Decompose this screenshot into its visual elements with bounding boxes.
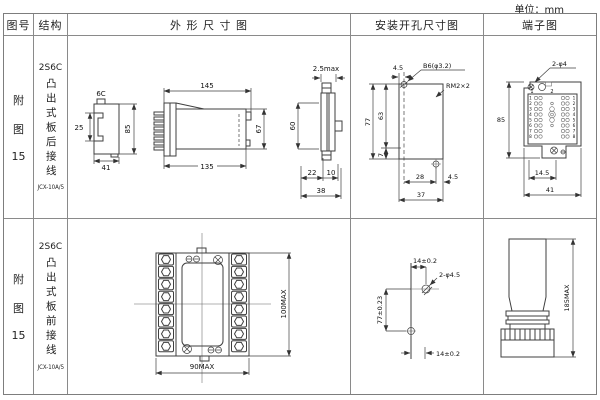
outline-cell-row1: 6C 25 85 41 xyxy=(68,36,351,219)
row-number: 5 xyxy=(529,118,532,123)
hole-spec-label: 2-φ4 xyxy=(552,60,567,68)
dim-label-38: 38 xyxy=(317,187,326,195)
dim-label-2-5max: 2.5max xyxy=(313,65,339,73)
relay-side-view xyxy=(154,103,251,156)
structure-cell-row2: 2S6C 凸出式板前接线 JCX-10A/5 xyxy=(34,219,68,394)
row-number: 6 xyxy=(573,123,576,128)
row-number: 7 xyxy=(573,129,576,134)
dim-label-14-bottom: 14±0.2 xyxy=(436,350,460,358)
dim-label-185max: 185MAX xyxy=(563,284,571,311)
figure-cell-row2: 附 图 15 xyxy=(4,219,34,394)
terminal-row-numbers-left: 1 2 3 4 5 6 7 8 xyxy=(529,96,532,140)
terminal-col2-label: 2 xyxy=(550,89,553,95)
dim-label-90max: 90MAX xyxy=(190,363,215,371)
row-number: 8 xyxy=(529,134,532,139)
structure-cell-row1: 2S6C 凸出式板后接线 JCX-10A/5 xyxy=(34,36,68,219)
socket-base xyxy=(501,329,554,357)
row-number: 2 xyxy=(529,101,532,106)
row-number: 4 xyxy=(529,112,532,117)
row-number: 5 xyxy=(573,118,576,123)
dim-label-145: 145 xyxy=(200,82,213,90)
dim-label-4-5-right: 4.5 xyxy=(448,173,458,181)
dim-label-100max: 100MAX xyxy=(280,289,288,318)
mount-type-text: 凸出式板后接线 xyxy=(45,78,56,180)
mounting-cell-row2: 14±0.2 2-φ4.5 77±0.23 14±0.2 xyxy=(351,219,484,394)
panel-edge-view xyxy=(321,83,342,160)
row-number: 2 xyxy=(573,101,576,106)
datasheet-page: 单位：mm 图号 结构 外 形 尺 寸 图 安装开孔尺寸图 端子图 附 图 15… xyxy=(0,0,600,400)
dim-label-135: 135 xyxy=(200,163,213,171)
mounting-drawing-front-wiring: 14±0.2 2-φ4.5 77±0.23 14±0.2 xyxy=(351,219,484,394)
header-mounting: 安装开孔尺寸图 xyxy=(351,14,484,36)
socket-terminal-screws-left xyxy=(159,254,174,352)
terminal-cell-row1: 1 2 1 2 3 xyxy=(484,36,596,219)
header-outline: 外 形 尺 寸 图 xyxy=(68,14,351,36)
row-number: 6 xyxy=(529,123,532,128)
type-code: JCX-10A/5 xyxy=(37,184,64,191)
thread-spec-label: RM2×2 xyxy=(446,82,470,90)
dim-label-4-5-top: 4.5 xyxy=(393,64,403,72)
dim-label-14-top: 14±0.2 xyxy=(413,257,437,265)
hole-spec-label: B6(φ3.2) xyxy=(423,62,451,70)
figure-cell-row1: 附 图 15 xyxy=(4,36,34,219)
dim-label-77: 77±0.23 xyxy=(376,296,384,324)
dim-label-85: 85 xyxy=(124,125,132,134)
figure-char: 图 xyxy=(13,300,24,316)
mounting-cell-row1: 4.5 B6(φ3.2) RM2×2 77 63 7 28 4.5 xyxy=(351,36,484,219)
dim-label-85: 85 xyxy=(497,116,505,124)
socket-mounting-screws xyxy=(183,256,223,354)
hole-spec-label: 2-φ4.5 xyxy=(439,271,460,279)
row-number: 1 xyxy=(529,96,532,101)
header-figure: 图号 xyxy=(4,14,34,36)
dim-label-63: 63 xyxy=(377,112,385,120)
relay-model: 2S6C xyxy=(39,242,62,252)
mounting-drawing-rear-wiring: 4.5 B6(φ3.2) RM2×2 77 63 7 28 4.5 xyxy=(351,36,484,219)
terminal-drawing: 1 2 1 2 3 xyxy=(484,36,596,219)
outline-drawing-front-wiring: 90MAX 100MAX xyxy=(68,219,351,394)
figure-number: 15 xyxy=(12,329,26,342)
dim-label-22: 22 xyxy=(308,169,317,177)
relay-model: 2S6C xyxy=(39,63,62,73)
figure-number: 15 xyxy=(12,150,26,163)
dim-label-25: 25 xyxy=(75,124,84,132)
relay-body xyxy=(506,239,549,329)
row-number: 3 xyxy=(529,107,532,112)
terminal-col1-label: 1 xyxy=(530,89,533,95)
socket-terminal-screws-right xyxy=(232,254,247,352)
dim-label-67: 67 xyxy=(255,125,263,134)
plate-screws xyxy=(528,82,566,154)
terminal-row-numbers-right: 1 2 3 4 5 6 7 8 xyxy=(573,96,576,140)
row-number: 7 xyxy=(529,129,532,134)
dim-label-60: 60 xyxy=(289,122,297,131)
dim-label-37: 37 xyxy=(417,191,425,199)
dim-label-10: 10 xyxy=(327,169,336,177)
terminal-cell-row2: 185MAX xyxy=(484,219,596,394)
mount-type-text: 凸出式板前接线 xyxy=(45,257,56,359)
type-code: JCX-10A/5 xyxy=(37,364,64,371)
dim-label-41: 41 xyxy=(546,186,554,194)
dim-label-28: 28 xyxy=(416,173,424,181)
dim-label-14-5: 14.5 xyxy=(535,169,549,177)
figure-char: 附 xyxy=(13,92,24,108)
mounting-hole-bottom xyxy=(406,326,416,336)
terminal-block xyxy=(528,94,577,144)
outline-cell-row2: 90MAX 100MAX xyxy=(68,219,351,394)
terminal-screw-grid xyxy=(534,96,569,138)
header-structure: 结构 xyxy=(34,14,68,36)
dim-label-77: 77 xyxy=(364,118,372,126)
dimension-table: 图号 结构 外 形 尺 寸 图 安装开孔尺寸图 端子图 附 图 15 2S6C … xyxy=(3,13,597,395)
row-number: 3 xyxy=(573,107,576,112)
mounting-hole-top xyxy=(422,285,432,295)
dim-label-41: 41 xyxy=(102,164,111,172)
dim-label-7: 7 xyxy=(377,153,385,157)
outline-drawing-rear-wiring: 6C 25 85 41 xyxy=(68,36,351,219)
cutout-rect xyxy=(399,84,443,159)
dim-label-6c: 6C xyxy=(96,90,105,98)
row-number: 8 xyxy=(573,134,576,139)
relay-front-view xyxy=(94,99,119,157)
figure-char: 图 xyxy=(13,121,24,137)
row-number: 1 xyxy=(573,96,576,101)
figure-char: 附 xyxy=(13,271,24,287)
row-number: 4 xyxy=(573,112,576,117)
header-terminal: 端子图 xyxy=(484,14,596,36)
relay-socket-side-view: 185MAX xyxy=(484,219,596,394)
